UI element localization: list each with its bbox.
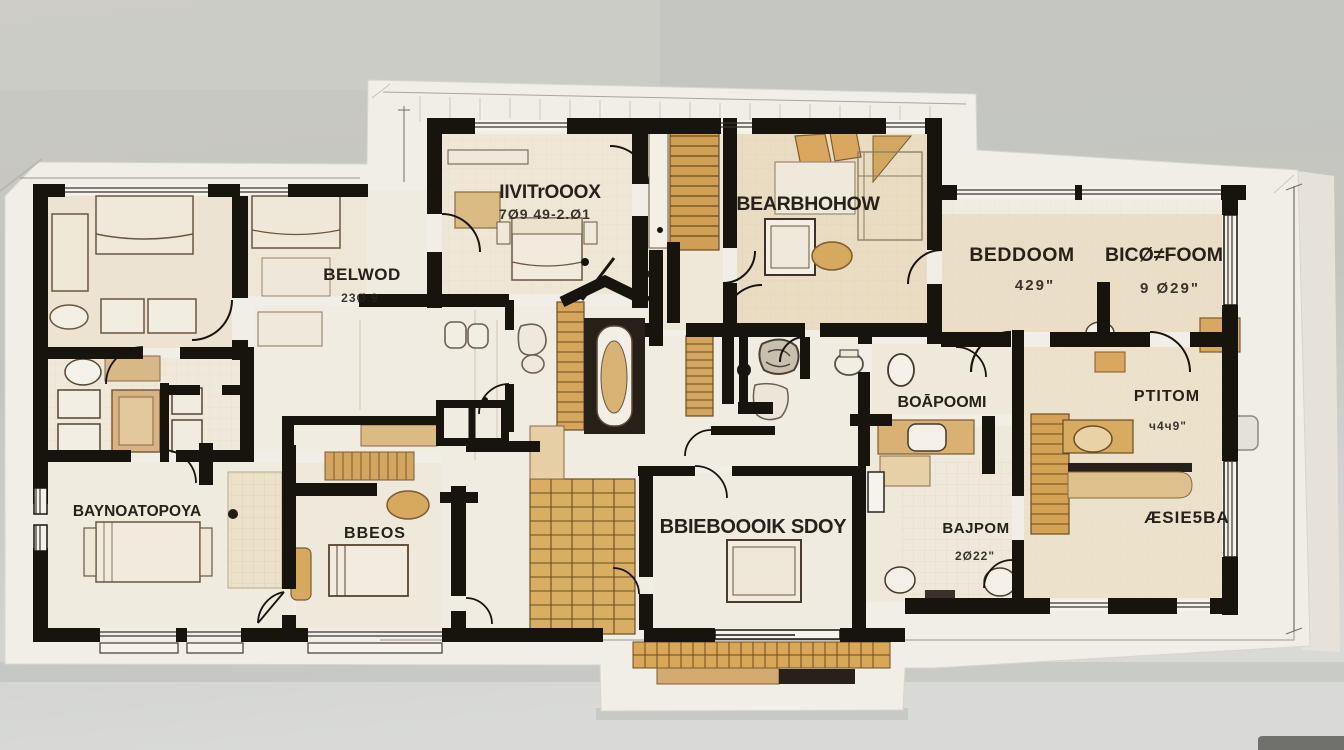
svg-text:2Ø22": 2Ø22" xyxy=(955,549,995,563)
svg-text:BELWOD: BELWOD xyxy=(323,265,401,284)
svg-text:BEARBHOHOW: BEARBHOHOW xyxy=(736,193,880,215)
svg-text:BAJPOM: BAJPOM xyxy=(942,520,1009,537)
svg-text:429": 429" xyxy=(1015,277,1055,294)
svg-text:ÆSIE5BA: ÆSIE5BA xyxy=(1144,508,1229,527)
svg-text:BICØ≠FOOM: BICØ≠FOOM xyxy=(1105,244,1223,266)
svg-text:IIVITrOOOX: IIVITrOOOX xyxy=(499,182,601,203)
svg-text:BOĀPOOMI: BOĀPOOMI xyxy=(898,392,987,411)
svg-text:BBIEBOOOIK SDOY: BBIEBOOOIK SDOY xyxy=(660,516,848,538)
svg-text:BEDDOOM: BEDDOOM xyxy=(969,244,1074,266)
svg-text:ч4ч9": ч4ч9" xyxy=(1149,419,1187,433)
svg-text:BBEOS: BBEOS xyxy=(344,525,406,542)
svg-text:9 Ø29": 9 Ø29" xyxy=(1140,280,1200,297)
svg-text:PTITOM: PTITOM xyxy=(1134,388,1200,405)
svg-text:7Ø9 49-2.Ø1: 7Ø9 49-2.Ø1 xyxy=(499,206,591,222)
svg-text:BAYNOATOPOYA: BAYNOATOPOYA xyxy=(73,503,201,520)
svg-text:23Ø 9: 23Ø 9 xyxy=(341,291,379,305)
